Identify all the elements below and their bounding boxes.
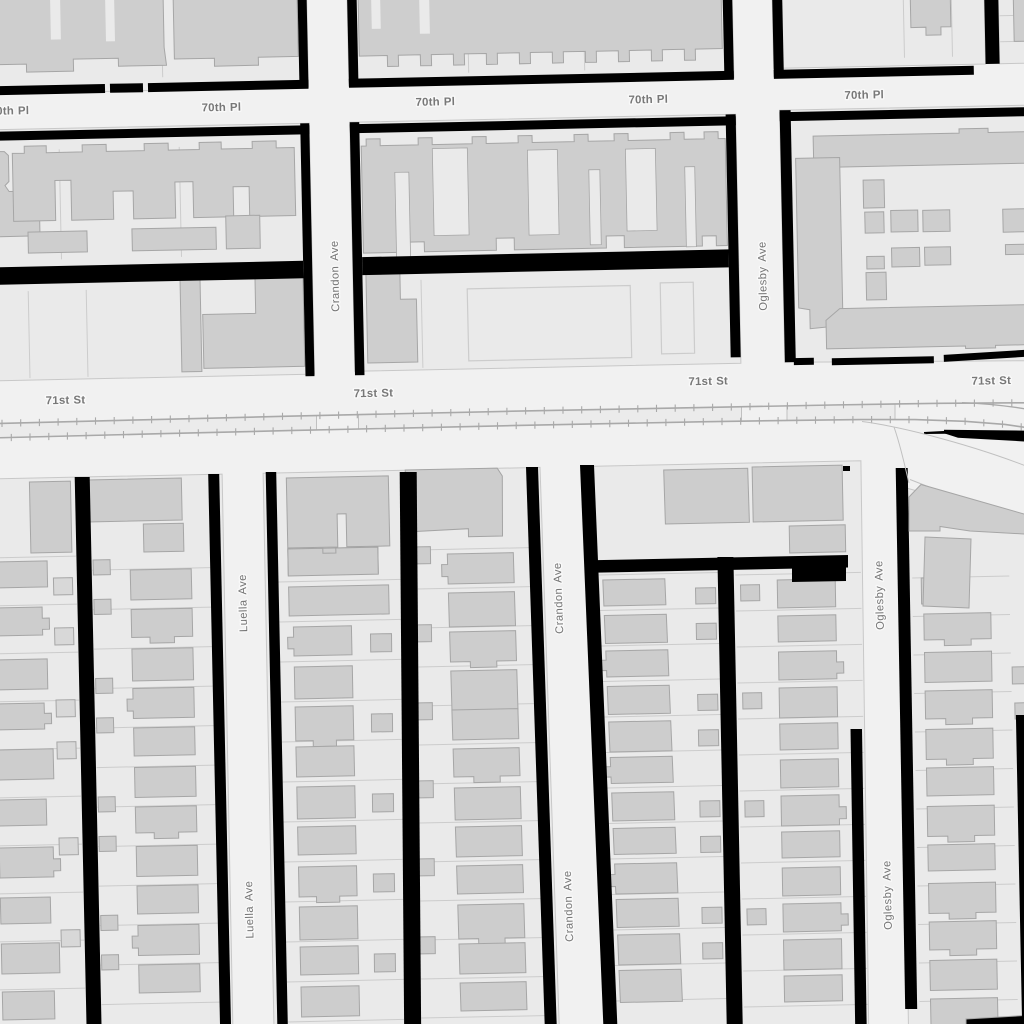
svg-text:Oglesby Ave: Oglesby Ave [873, 560, 887, 630]
svg-text:70th Pl: 70th Pl [628, 94, 668, 107]
svg-text:71st St: 71st St [971, 375, 1011, 388]
svg-text:Luella Ave: Luella Ave [243, 880, 256, 938]
svg-text:Oglesby Ave: Oglesby Ave [881, 860, 895, 930]
svg-text:71st St: 71st St [354, 387, 394, 400]
svg-text:Oglesby Ave: Oglesby Ave [756, 241, 769, 311]
svg-text:70th Pl: 70th Pl [0, 105, 29, 118]
svg-text:Luella Ave: Luella Ave [237, 574, 250, 632]
svg-text:71st St: 71st St [46, 394, 86, 407]
svg-text:70th Pl: 70th Pl [844, 89, 884, 102]
svg-text:Crandon Ave: Crandon Ave [562, 870, 576, 942]
svg-text:Crandon Ave: Crandon Ave [552, 562, 566, 634]
svg-text:70th Pl: 70th Pl [415, 96, 455, 109]
svg-text:71st St: 71st St [688, 375, 728, 388]
svg-text:Crandon Ave: Crandon Ave [329, 240, 342, 312]
svg-text:70th Pl: 70th Pl [202, 102, 242, 115]
